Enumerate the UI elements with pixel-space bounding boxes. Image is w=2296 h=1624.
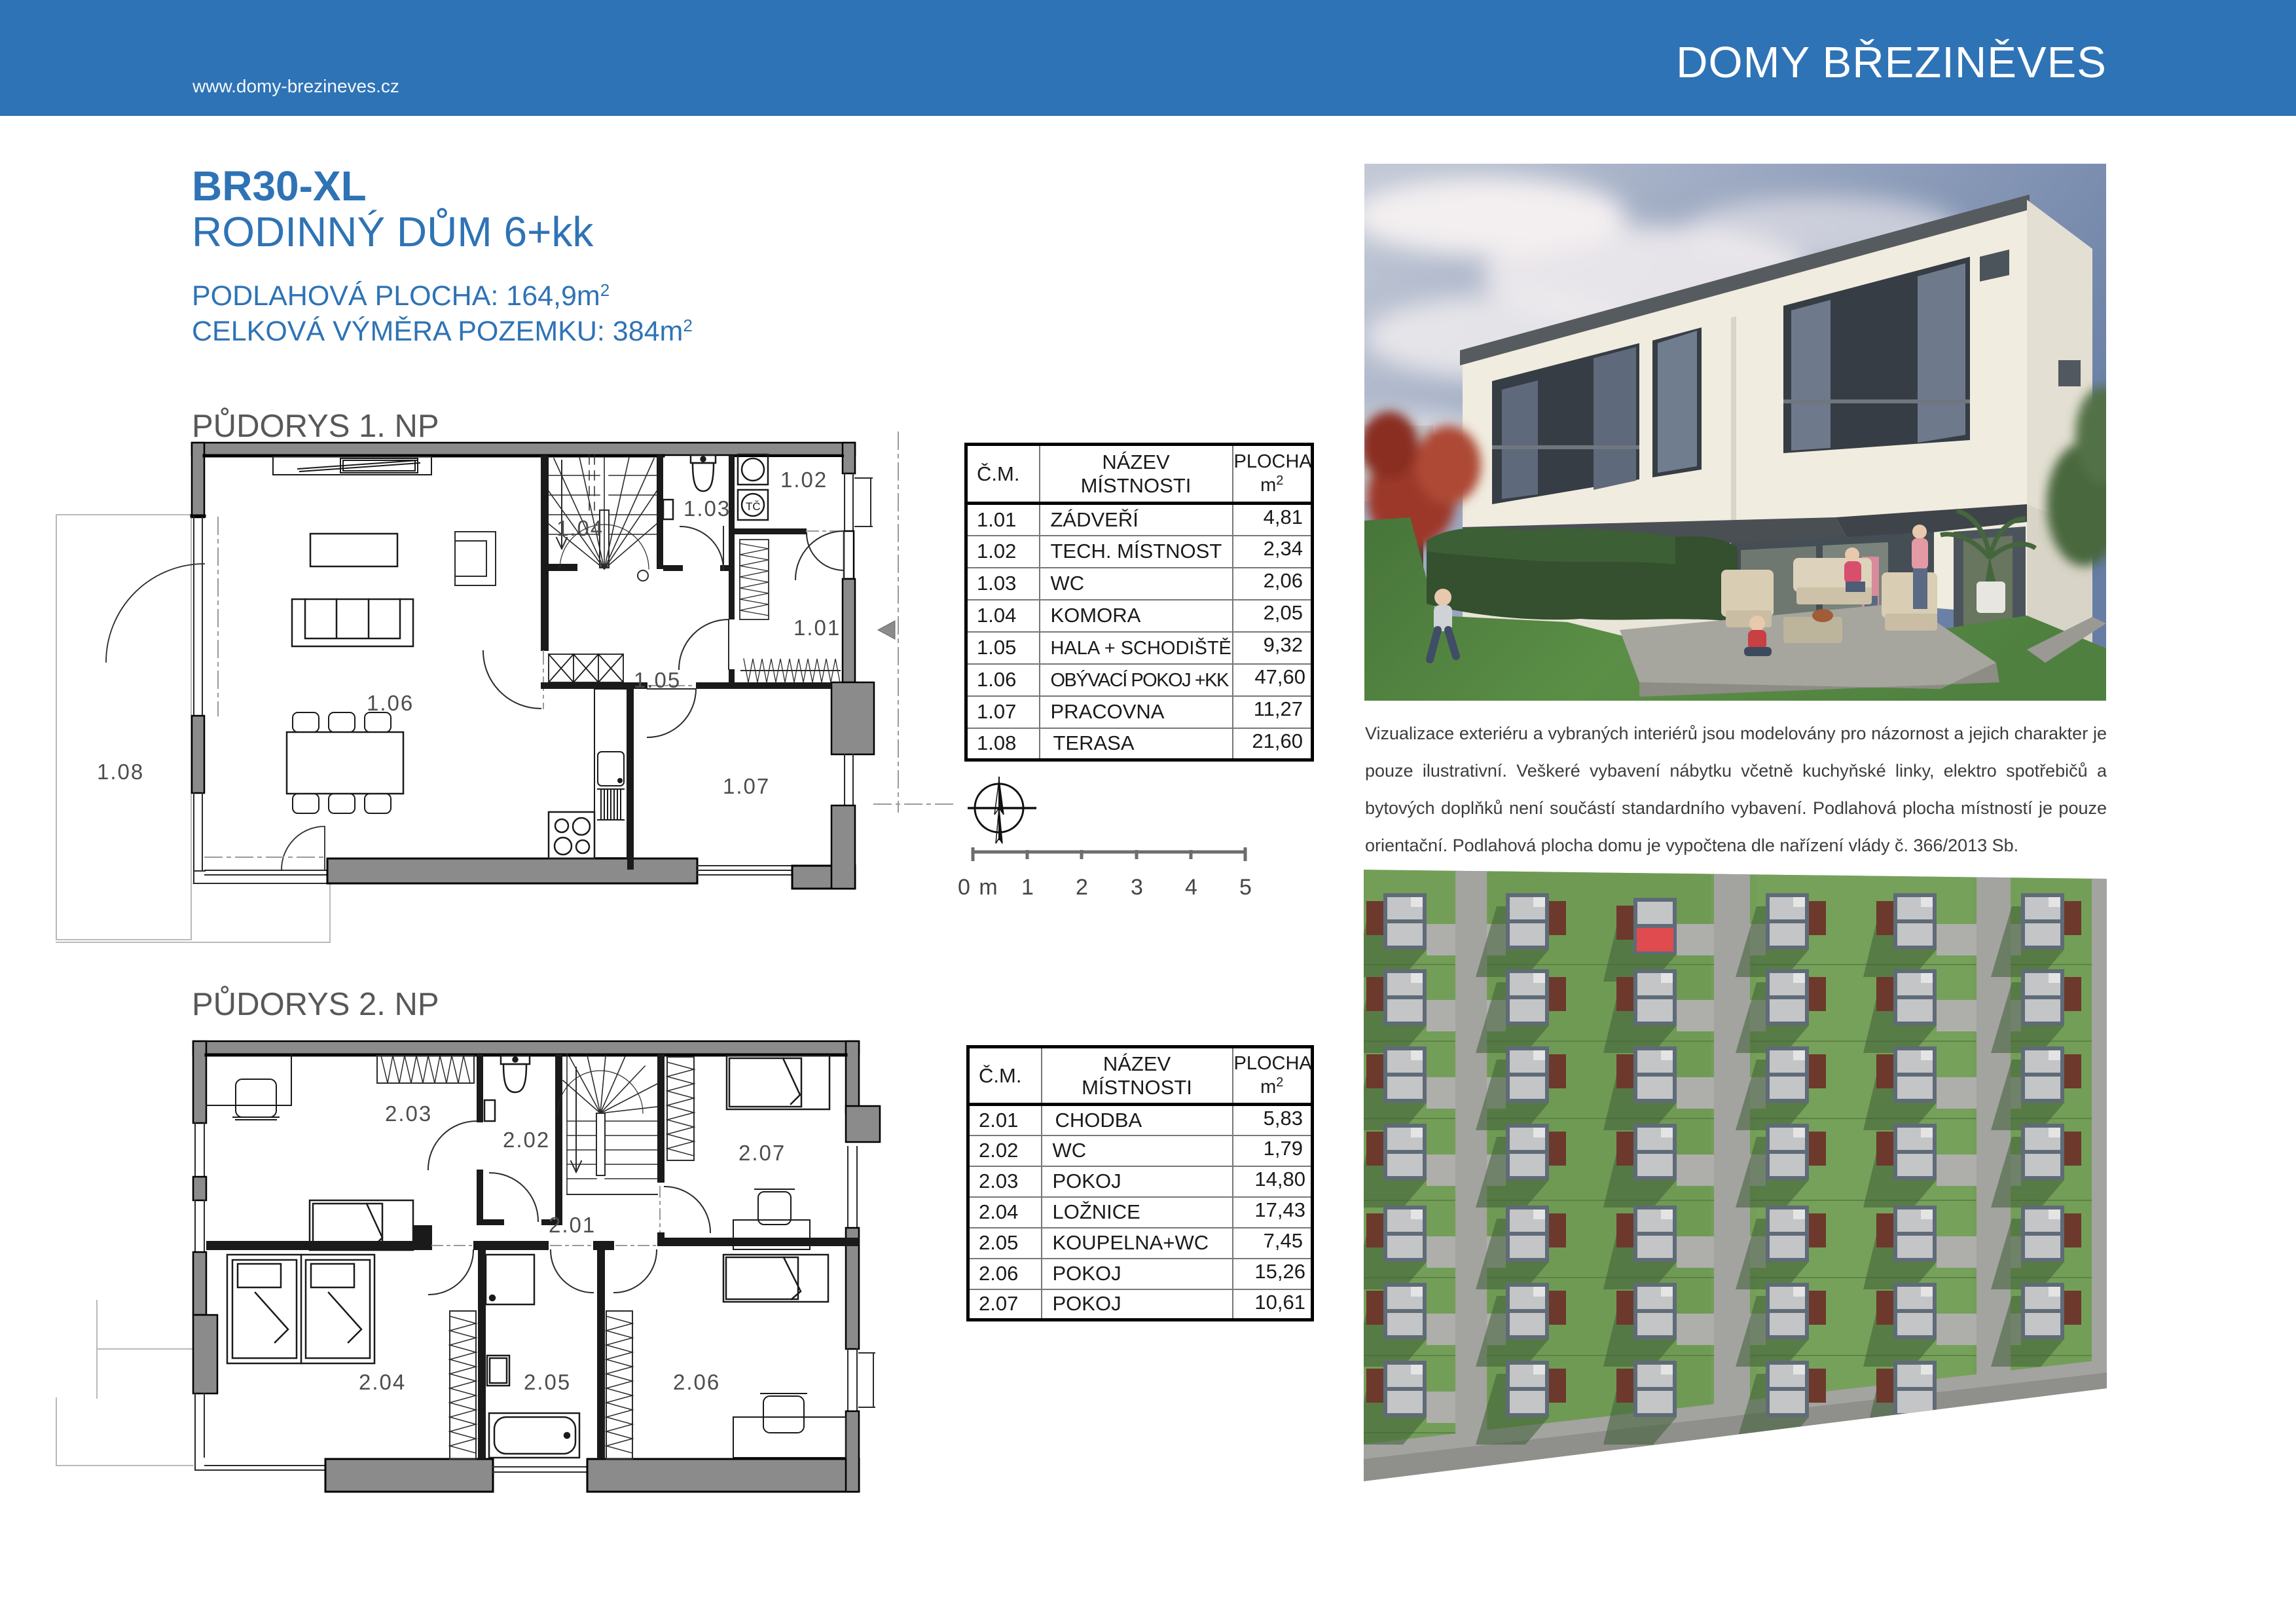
svg-text:2.06: 2.06 xyxy=(673,1370,720,1394)
svg-text:1.04: 1.04 xyxy=(556,516,604,540)
svg-text:2.07: 2.07 xyxy=(738,1141,786,1165)
svg-text:0 m: 0 m xyxy=(958,875,999,900)
svg-text:2.02: 2.02 xyxy=(503,1128,550,1152)
svg-text:1.06: 1.06 xyxy=(367,691,414,715)
svg-text:2.01: 2.01 xyxy=(549,1213,596,1237)
svg-text:TČ: TČ xyxy=(746,500,761,513)
svg-text:1.05: 1.05 xyxy=(634,668,681,692)
svg-text:2.03: 2.03 xyxy=(385,1101,432,1126)
svg-text:2.05: 2.05 xyxy=(524,1370,571,1394)
svg-text:3: 3 xyxy=(1131,875,1144,900)
svg-text:1.08: 1.08 xyxy=(97,760,144,784)
svg-text:1.03: 1.03 xyxy=(683,496,731,521)
svg-text:1.01: 1.01 xyxy=(793,616,841,640)
svg-text:4: 4 xyxy=(1185,875,1199,900)
svg-text:2: 2 xyxy=(1076,875,1089,900)
svg-text:5: 5 xyxy=(1239,875,1253,900)
svg-text:1.07: 1.07 xyxy=(723,774,770,798)
svg-text:1.02: 1.02 xyxy=(780,468,828,492)
svg-text:1: 1 xyxy=(1021,875,1035,900)
svg-text:2.04: 2.04 xyxy=(359,1370,406,1394)
